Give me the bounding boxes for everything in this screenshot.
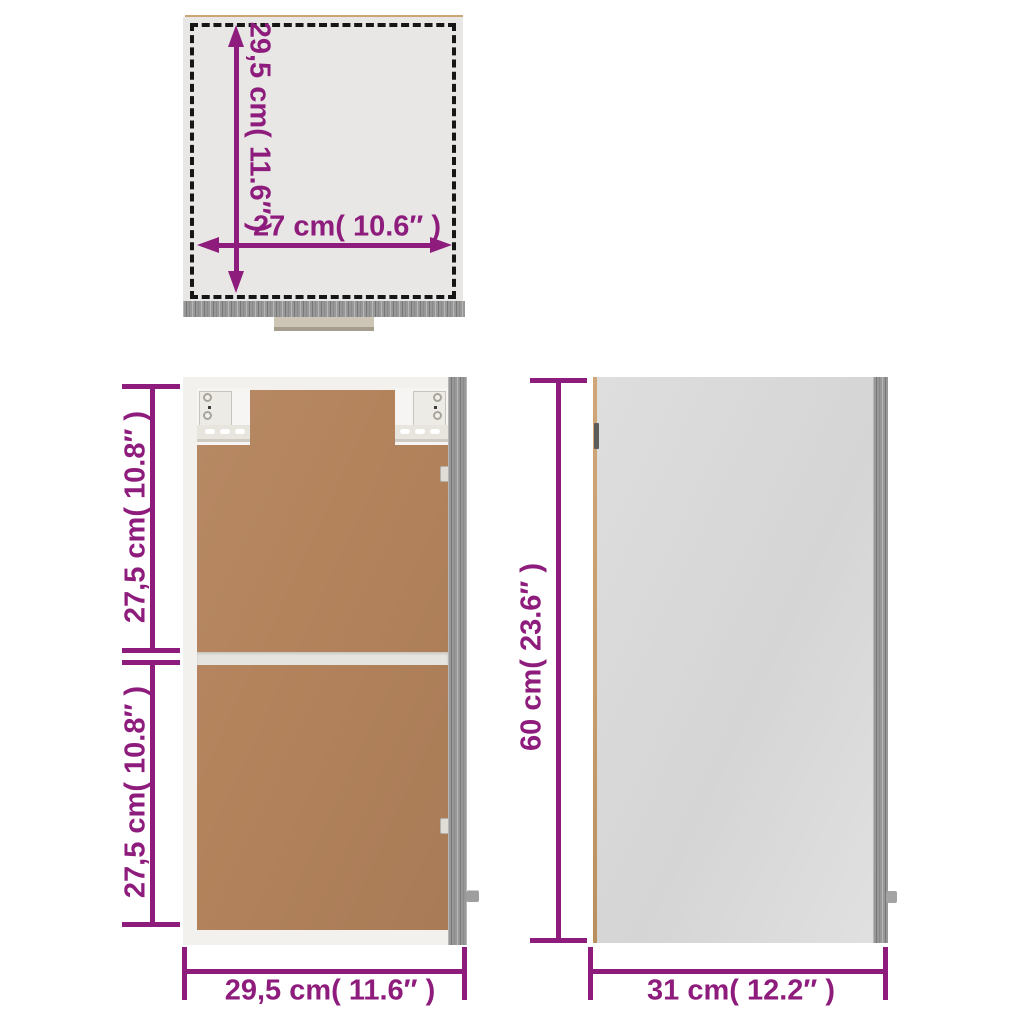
top-view-dashed-outline — [190, 23, 456, 299]
product-dimension-diagram: 29,5 cm( 11.6″ ) 27 cm( 10.6″ ) — [0, 0, 1024, 1024]
top-view-door-handle — [274, 317, 374, 331]
top-view-door-edge — [183, 301, 465, 317]
dimension-label: 60 cm( 23.6″ ) — [518, 563, 547, 751]
screw-icon — [433, 411, 442, 420]
dimension-label: 29,5 cm( 11.6″ ) — [225, 977, 436, 1006]
bracket-rail — [197, 425, 250, 442]
dimension-cap — [530, 938, 587, 943]
side-view-door-knob — [886, 891, 897, 903]
arrow-down-icon — [228, 271, 244, 293]
front-view-bracket-right — [395, 388, 448, 445]
dimension-label: 29,5 cm( 11.6″ ) — [245, 22, 274, 233]
screw-hole-icon — [208, 406, 211, 409]
bracket-rail — [395, 425, 448, 442]
screw-icon — [203, 411, 212, 420]
rail-slot — [235, 429, 245, 434]
dimension-label: 27,5 cm( 10.8″ ) — [122, 686, 151, 898]
rail-slot — [400, 429, 410, 434]
rail-slot — [415, 429, 425, 434]
side-view-back-edge — [873, 377, 888, 943]
rail-slot — [430, 429, 440, 434]
screw-icon — [203, 393, 212, 402]
rail-slot — [220, 429, 230, 434]
dimension-line — [182, 969, 467, 974]
dimension-line — [234, 44, 239, 276]
front-view-side-edge — [448, 377, 467, 945]
dimension-cap — [462, 947, 467, 1000]
dimension-cap — [122, 922, 180, 927]
dimension-cap — [122, 648, 180, 653]
screw-icon — [433, 393, 442, 402]
front-view — [183, 377, 467, 945]
dimension-label: 27 cm( 10.6″ ) — [253, 213, 441, 242]
dimension-label: 31 cm( 12.2″ ) — [647, 977, 835, 1006]
dimension-cap — [883, 947, 888, 1000]
screw-hole-icon — [434, 406, 437, 409]
dimension-line — [588, 969, 888, 974]
dimension-label: 27,5 cm( 10.8″ ) — [122, 411, 151, 623]
front-view-bracket-left — [197, 388, 250, 445]
dimension-line — [216, 243, 436, 248]
side-view-bracket-mark — [594, 423, 599, 449]
front-view-door-knob — [466, 890, 479, 902]
side-view — [593, 377, 888, 943]
side-view-front-edge — [593, 377, 597, 943]
rail-slot — [205, 429, 215, 434]
front-view-shelf — [197, 652, 448, 665]
dimension-line — [556, 378, 561, 941]
